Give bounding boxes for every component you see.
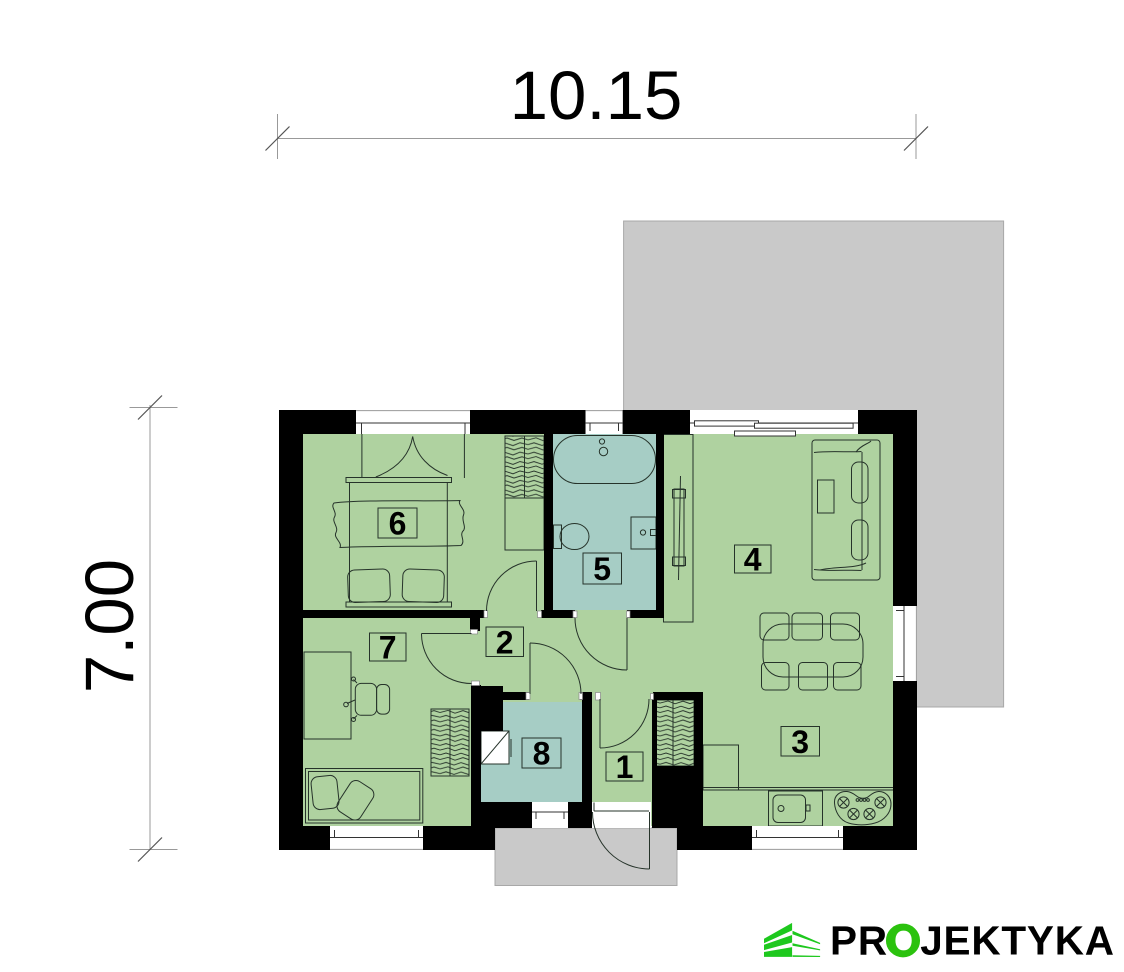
svg-text:6: 6 <box>389 506 407 542</box>
svg-text:10.15: 10.15 <box>510 57 683 134</box>
svg-text:5: 5 <box>593 551 611 587</box>
svg-text:2: 2 <box>496 624 514 660</box>
svg-text:8: 8 <box>533 736 551 772</box>
svg-text:1: 1 <box>616 749 634 785</box>
svg-text:7.00: 7.00 <box>71 559 148 693</box>
svg-text:PROJEKTYKA: PROJEKTYKA <box>830 918 1115 964</box>
svg-text:4: 4 <box>744 542 762 578</box>
svg-text:3: 3 <box>791 724 809 760</box>
svg-text:7: 7 <box>379 630 397 666</box>
